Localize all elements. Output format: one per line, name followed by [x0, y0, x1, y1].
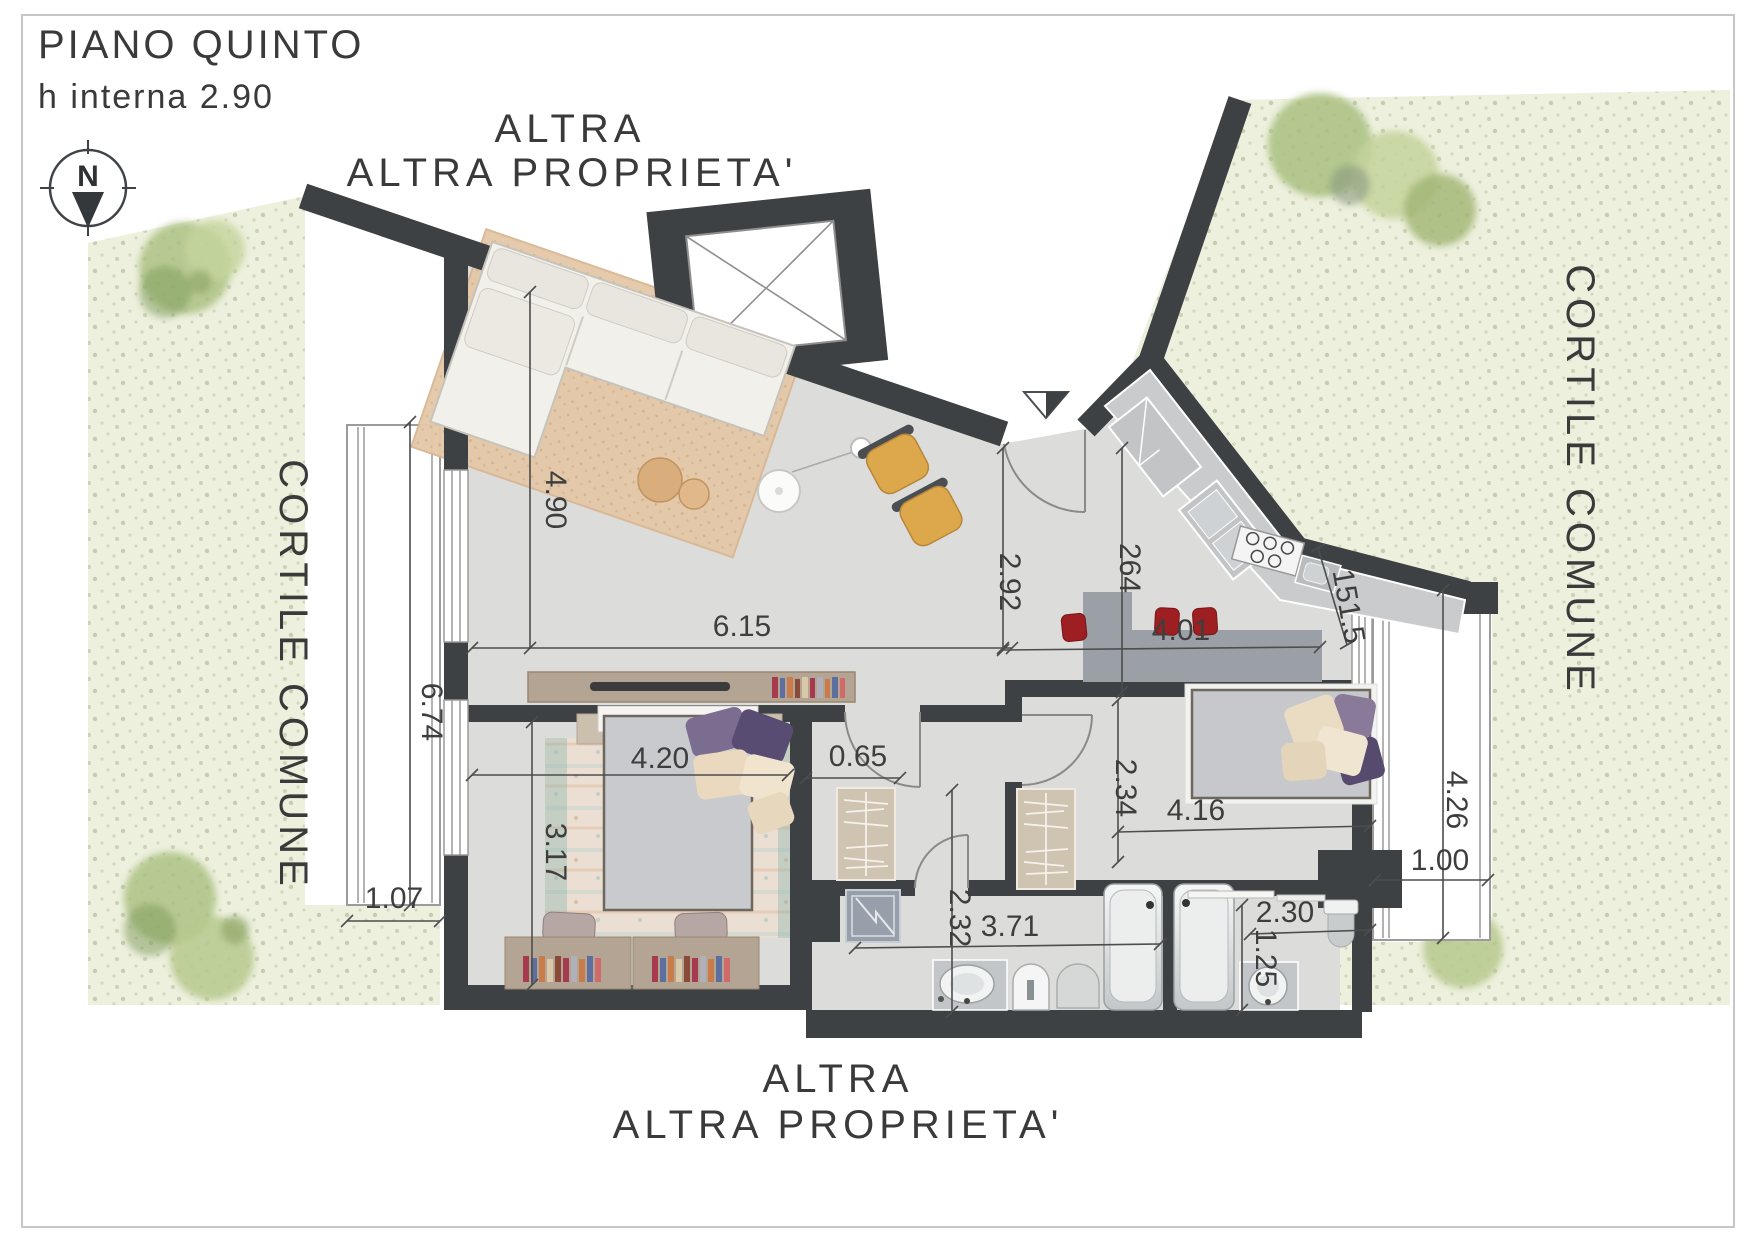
label-cortile-comune-right: CORTILE COMUNE [1558, 264, 1602, 696]
bidet [1013, 964, 1049, 1010]
dim-label-bathroom2-depth: 1.25 [1249, 929, 1282, 987]
bathtub-1 [1104, 884, 1162, 1010]
dim-label-bathroom1-depth: 2.32 [943, 889, 976, 947]
dim-label-balcony-left-length: 6.74 [415, 683, 448, 741]
coffee-table [758, 470, 800, 512]
dim-label-bedroom1-width: 4.20 [631, 742, 689, 775]
bathtub-2 [1174, 884, 1234, 1010]
washing-machine [846, 890, 900, 942]
dim-label-bathroom2-width: 2.30 [1256, 896, 1314, 929]
label-altra-proprieta-top-line2: ALTRA PROPRIETA' [347, 151, 798, 195]
window-west-1 [444, 470, 468, 642]
dim-label-bathroom1-width: 3.71 [981, 910, 1039, 943]
wardrobe-1 [837, 788, 895, 880]
page-title: PIANO QUINTO [38, 23, 364, 67]
dim-label-balcony-left-depth: 1.07 [365, 882, 423, 915]
wardrobe-2 [1017, 789, 1075, 889]
label-altra-proprieta-bottom-line1: ALTRA [763, 1057, 914, 1101]
dim-label-kitchen-corridor: 264 [1113, 543, 1146, 593]
balcony-left [347, 425, 440, 905]
dim-label-living-width: 6.15 [713, 610, 771, 643]
floorplan-page: 4.90 6.15 2.92 264 4.01 1 [0, 0, 1755, 1242]
label-cortile-comune-left: CORTILE COMUNE [271, 459, 315, 891]
dim-label-bedroom2-width: 4.16 [1167, 794, 1225, 827]
sink-1 [933, 960, 1007, 1010]
entrance-arrow-icon [1024, 392, 1068, 418]
dim-label-entry-corridor: 2.92 [993, 553, 1026, 611]
page-subtitle: h interna 2.90 [38, 78, 274, 116]
toilet-1 [1057, 964, 1099, 1008]
dim-label-balcony-right-depth: 1.00 [1411, 844, 1469, 877]
label-altra-proprieta-bottom-line2: ALTRA PROPRIETA' [613, 1103, 1064, 1147]
dim-label-bedroom2-depth: 2.34 [1109, 759, 1142, 817]
compass-needle-icon [72, 192, 104, 228]
dim-label-balcony-right-length: 4.26 [1440, 771, 1473, 829]
shaft-block [1318, 850, 1402, 908]
compass-north-label: N [77, 160, 99, 193]
toilet-2 [1324, 900, 1358, 947]
bed-2 [1185, 684, 1387, 804]
dim-label-kitchen-table-width: 4.01 [1152, 614, 1210, 647]
compass: N [40, 140, 136, 236]
sideboard [528, 672, 855, 702]
dim-label-bedroom1-depth: 3.17 [539, 823, 572, 881]
label-altra-proprieta-top-line1: ALTRA [495, 107, 646, 151]
dim-label-living-depth: 4.90 [539, 471, 572, 529]
dim-label-hall-nook: 0.65 [829, 740, 887, 773]
